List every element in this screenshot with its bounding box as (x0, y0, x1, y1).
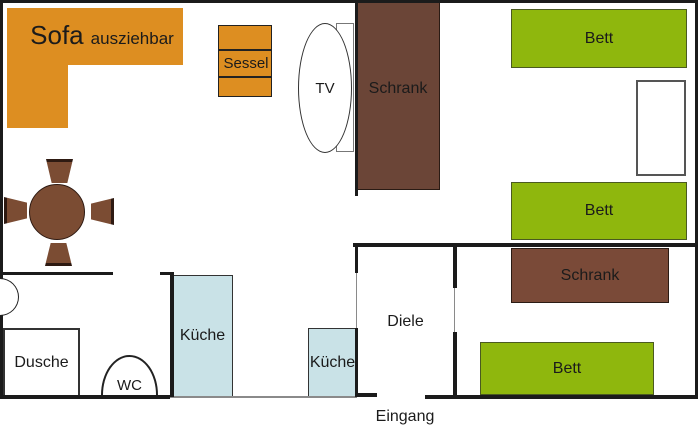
bed-2-label: Bett (585, 202, 613, 220)
wall-bottom-right (425, 395, 698, 399)
wall-bottom-kitchen (170, 396, 357, 398)
armchair: Sessel (218, 25, 272, 97)
toilet-label: WC (117, 377, 142, 394)
shower-label: Dusche (14, 354, 68, 372)
sofa-label: Sofa ausziehbar (26, 20, 178, 50)
wardrobe-living-room: Schrank (356, 0, 440, 190)
entrance-label: Eingang (376, 408, 435, 426)
chair-right (91, 198, 114, 225)
sofa-label-main: Sofa (30, 20, 84, 51)
floor-plan: Sofa ausziehbar Sessel TV Schrank Bett B… (0, 0, 698, 428)
wardrobe-living-room-label: Schrank (369, 80, 428, 98)
kitchen-counter-large: Küche (172, 275, 233, 397)
bed-3: Bett (480, 342, 654, 395)
wall-hallway-left-upper (355, 243, 358, 273)
kitchen-counter-small: Küche (308, 328, 357, 397)
shower: Dusche (3, 328, 80, 397)
wall-left (0, 0, 3, 399)
tv-screen: TV (298, 23, 352, 153)
sofa-label-note: ausziehbar (91, 29, 174, 49)
wall-top (0, 0, 698, 3)
toilet: WC (101, 355, 158, 397)
wall-bathroom-top (0, 272, 113, 275)
wardrobe-bedroom: Schrank (511, 248, 669, 303)
wall-hallway-right-door (454, 288, 455, 332)
chair-bottom (45, 243, 72, 266)
hallway-label: Diele (387, 313, 423, 331)
dining-table (29, 184, 85, 240)
wall-hallway-left-lower (355, 328, 358, 397)
bed-1-label: Bett (585, 30, 613, 48)
wall-bottom-left (0, 395, 170, 399)
side-table (636, 80, 686, 176)
sink (0, 278, 19, 316)
hallway-label-box: Diele (358, 311, 453, 333)
wall-kitchen-left (170, 272, 174, 397)
wall-bedroom-divider (353, 243, 698, 247)
entrance-label-box: Eingang (355, 406, 455, 428)
wall-center (355, 0, 358, 196)
chair-top (46, 159, 73, 183)
kitchen-counter-large-label: Küche (180, 327, 225, 345)
wall-hallway-left-door (356, 273, 357, 328)
wardrobe-bedroom-label: Schrank (561, 267, 620, 285)
wall-bottom-hall-stub (357, 393, 377, 397)
tv-label: TV (315, 80, 334, 97)
armchair-divider-bottom (219, 76, 271, 78)
bed-3-label: Bett (553, 360, 581, 378)
bed-1: Bett (511, 9, 687, 68)
armchair-label: Sessel (219, 50, 273, 76)
wall-hallway-right-lower (453, 332, 457, 397)
chair-left (4, 197, 27, 224)
bed-2: Bett (511, 182, 687, 240)
kitchen-counter-small-label: Küche (310, 354, 355, 372)
wall-hallway-right-upper (453, 247, 457, 288)
